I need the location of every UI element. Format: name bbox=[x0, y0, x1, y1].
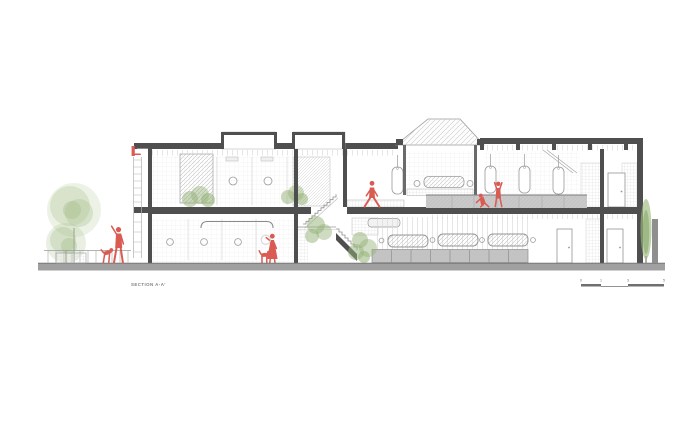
punching-bag bbox=[392, 155, 403, 194]
lower-door-right bbox=[607, 229, 623, 263]
ladder-rungs bbox=[133, 160, 142, 252]
left-wall bbox=[148, 149, 152, 263]
scale-label-5: 5 bbox=[663, 278, 666, 283]
lower-door-left bbox=[557, 229, 572, 263]
scale-label-0: 0 bbox=[580, 278, 583, 283]
floor-slab-left bbox=[148, 207, 311, 214]
left-facade bbox=[132, 146, 148, 258]
architectural-section-drawing: SECTION A-A' 0 1 3 5 bbox=[0, 0, 700, 438]
scale-bar: 0 1 3 5 bbox=[580, 278, 666, 287]
roof-monitor-1 bbox=[221, 132, 277, 149]
man-with-raised-arm-figure bbox=[112, 226, 124, 262]
upper-door bbox=[608, 173, 625, 207]
garden-wall bbox=[652, 219, 658, 263]
interior-right-wall bbox=[600, 149, 604, 263]
roof-right bbox=[480, 138, 643, 144]
stair-wall bbox=[294, 149, 298, 263]
scale-label-1: 1 bbox=[600, 278, 603, 283]
corridor-wall bbox=[343, 149, 347, 207]
balcony-railing bbox=[426, 195, 587, 208]
section-title: SECTION A-A' bbox=[131, 282, 166, 287]
ground bbox=[38, 263, 665, 271]
dining-area bbox=[372, 217, 535, 263]
floor-slab-right bbox=[347, 207, 640, 214]
plant-stair bbox=[305, 216, 332, 243]
balcony-stub bbox=[134, 207, 148, 213]
sofa bbox=[424, 177, 464, 188]
scale-label-3: 3 bbox=[627, 278, 630, 283]
dining-tables bbox=[388, 234, 528, 247]
roof-monitor-2 bbox=[292, 132, 345, 149]
planter-box bbox=[56, 253, 86, 263]
section-canvas: SECTION A-A' 0 1 3 5 bbox=[0, 0, 700, 438]
